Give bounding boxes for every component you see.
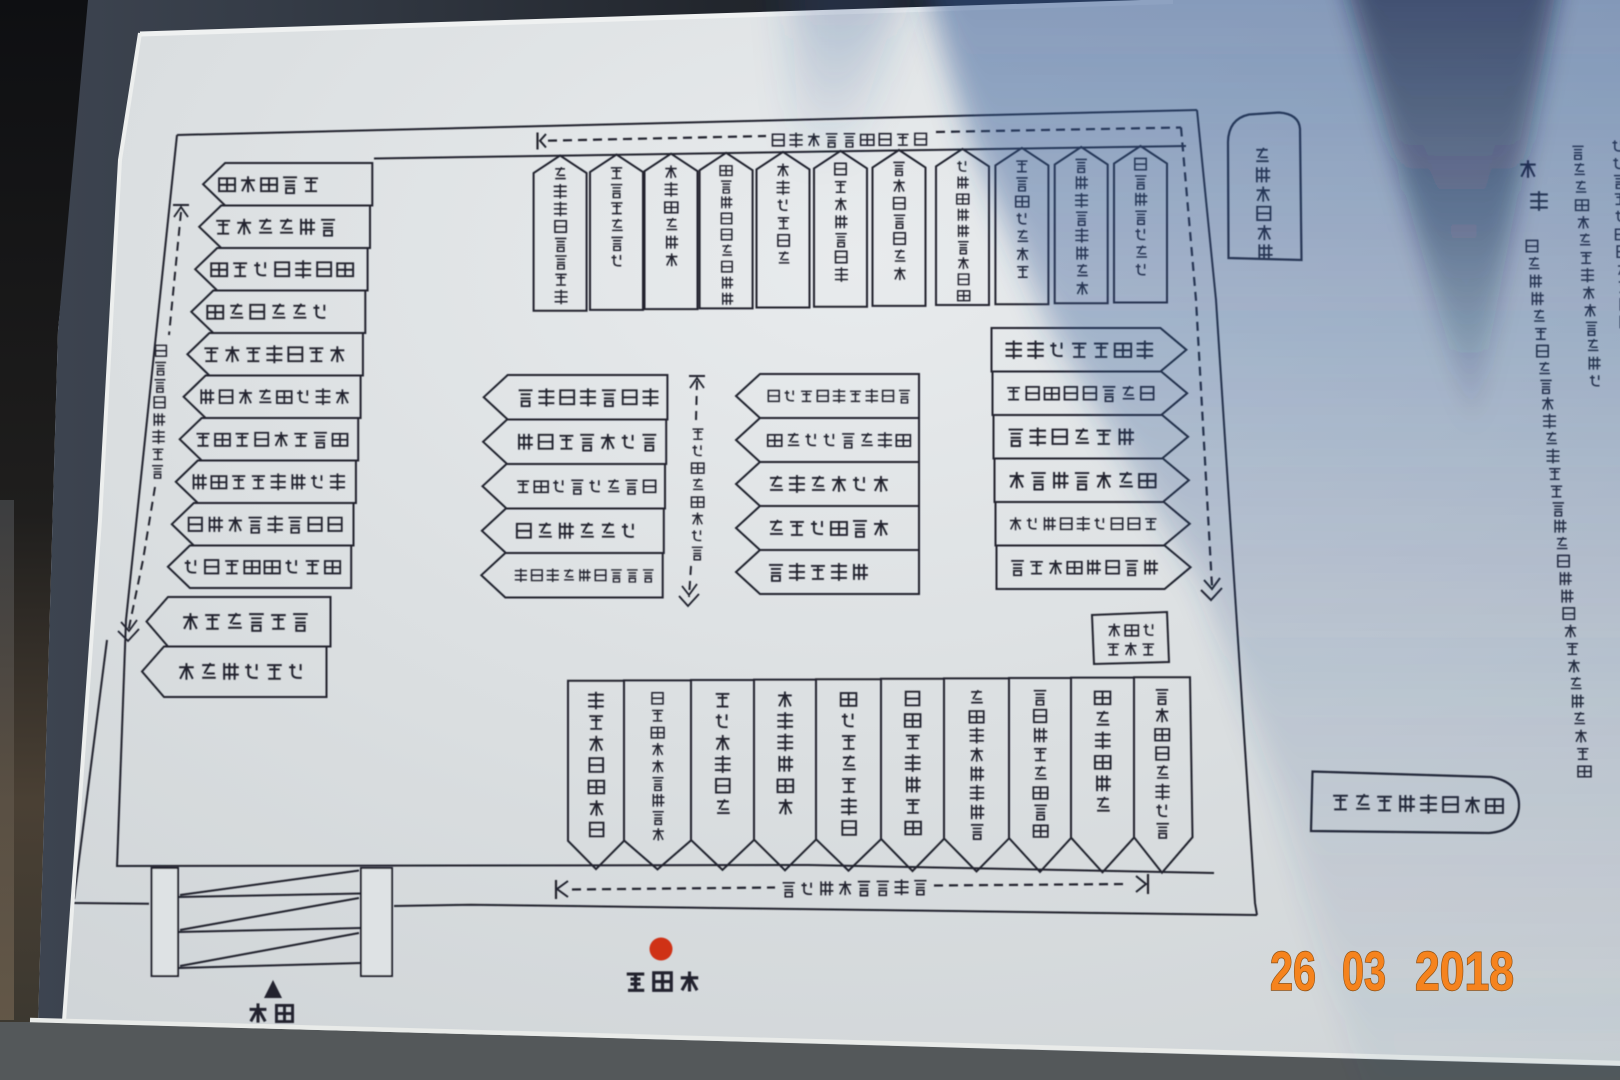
svg-text:2018: 2018 xyxy=(1415,940,1514,1002)
svg-text:26: 26 xyxy=(1270,940,1316,1002)
svg-text:03: 03 xyxy=(1342,940,1386,1002)
